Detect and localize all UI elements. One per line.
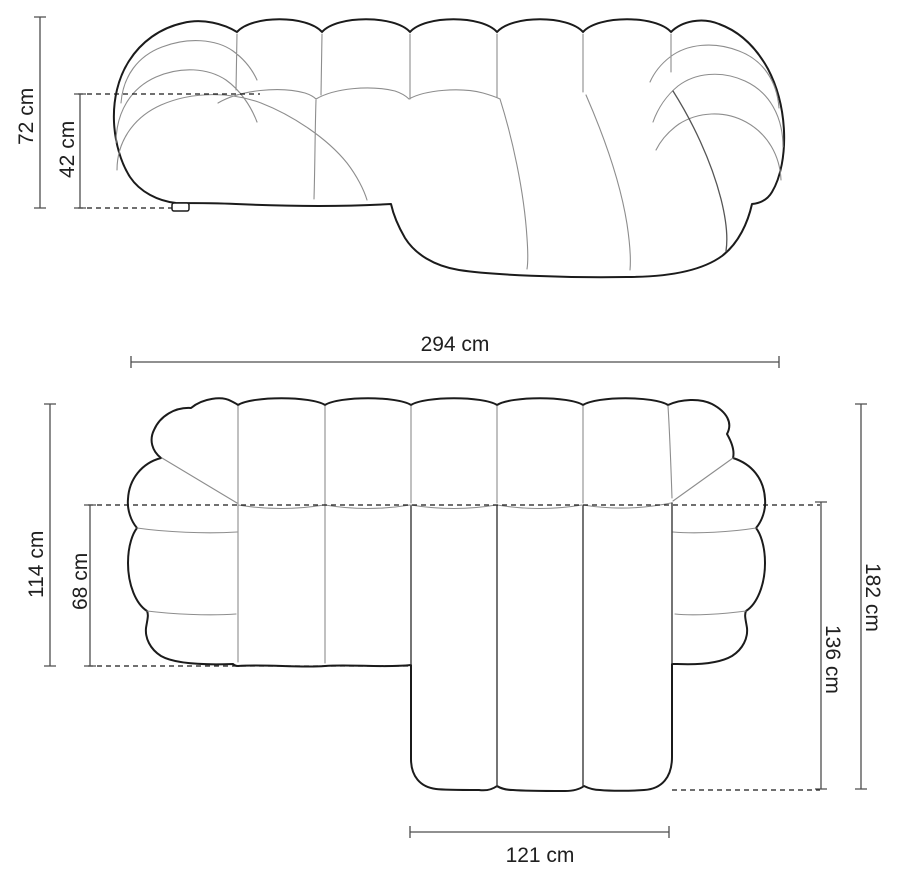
dimension-total-depth-label: 182 cm [861, 563, 884, 632]
front-view: 72 cm 42 cm [15, 17, 784, 277]
dimension-chaise-width-line [410, 826, 669, 838]
dimension-body-depth-label: 114 cm [25, 531, 48, 598]
dimension-seat-height: 42 cm [56, 94, 86, 208]
dimension-chaise-width: 121 cm [410, 826, 669, 867]
front-sofa-foot [172, 203, 189, 211]
dimension-total-depth: 182 cm [855, 404, 884, 789]
dimension-body-depth: 114 cm [25, 404, 56, 666]
top-view: 294 cm 114 cm 68 cm 182 cm 136 cm 121 cm [25, 333, 884, 867]
dimension-total-width-label: 294 cm [421, 333, 490, 356]
dimension-total-height-label: 72 cm [15, 88, 38, 145]
dimension-seat-height-label: 42 cm [56, 121, 79, 178]
dimension-seat-depth: 68 cm [69, 505, 96, 666]
dimension-chaise-depth-label: 136 cm [821, 625, 844, 694]
dimension-seat-depth-label: 68 cm [69, 553, 92, 610]
sofa-dimension-diagram-page: 72 cm 42 cm 294 cm 114 cm 68 c [0, 0, 900, 880]
top-sofa-outline [128, 398, 765, 791]
front-sofa-outline [114, 19, 784, 277]
dimension-total-height: 72 cm [15, 17, 46, 208]
dimension-total-width: 294 cm [131, 333, 779, 368]
sofa-dimension-diagram: 72 cm 42 cm 294 cm 114 cm 68 c [0, 0, 900, 880]
dimension-chaise-depth: 136 cm [815, 502, 844, 789]
dimension-chaise-width-label: 121 cm [506, 844, 575, 867]
dimension-total-width-line [131, 356, 779, 368]
